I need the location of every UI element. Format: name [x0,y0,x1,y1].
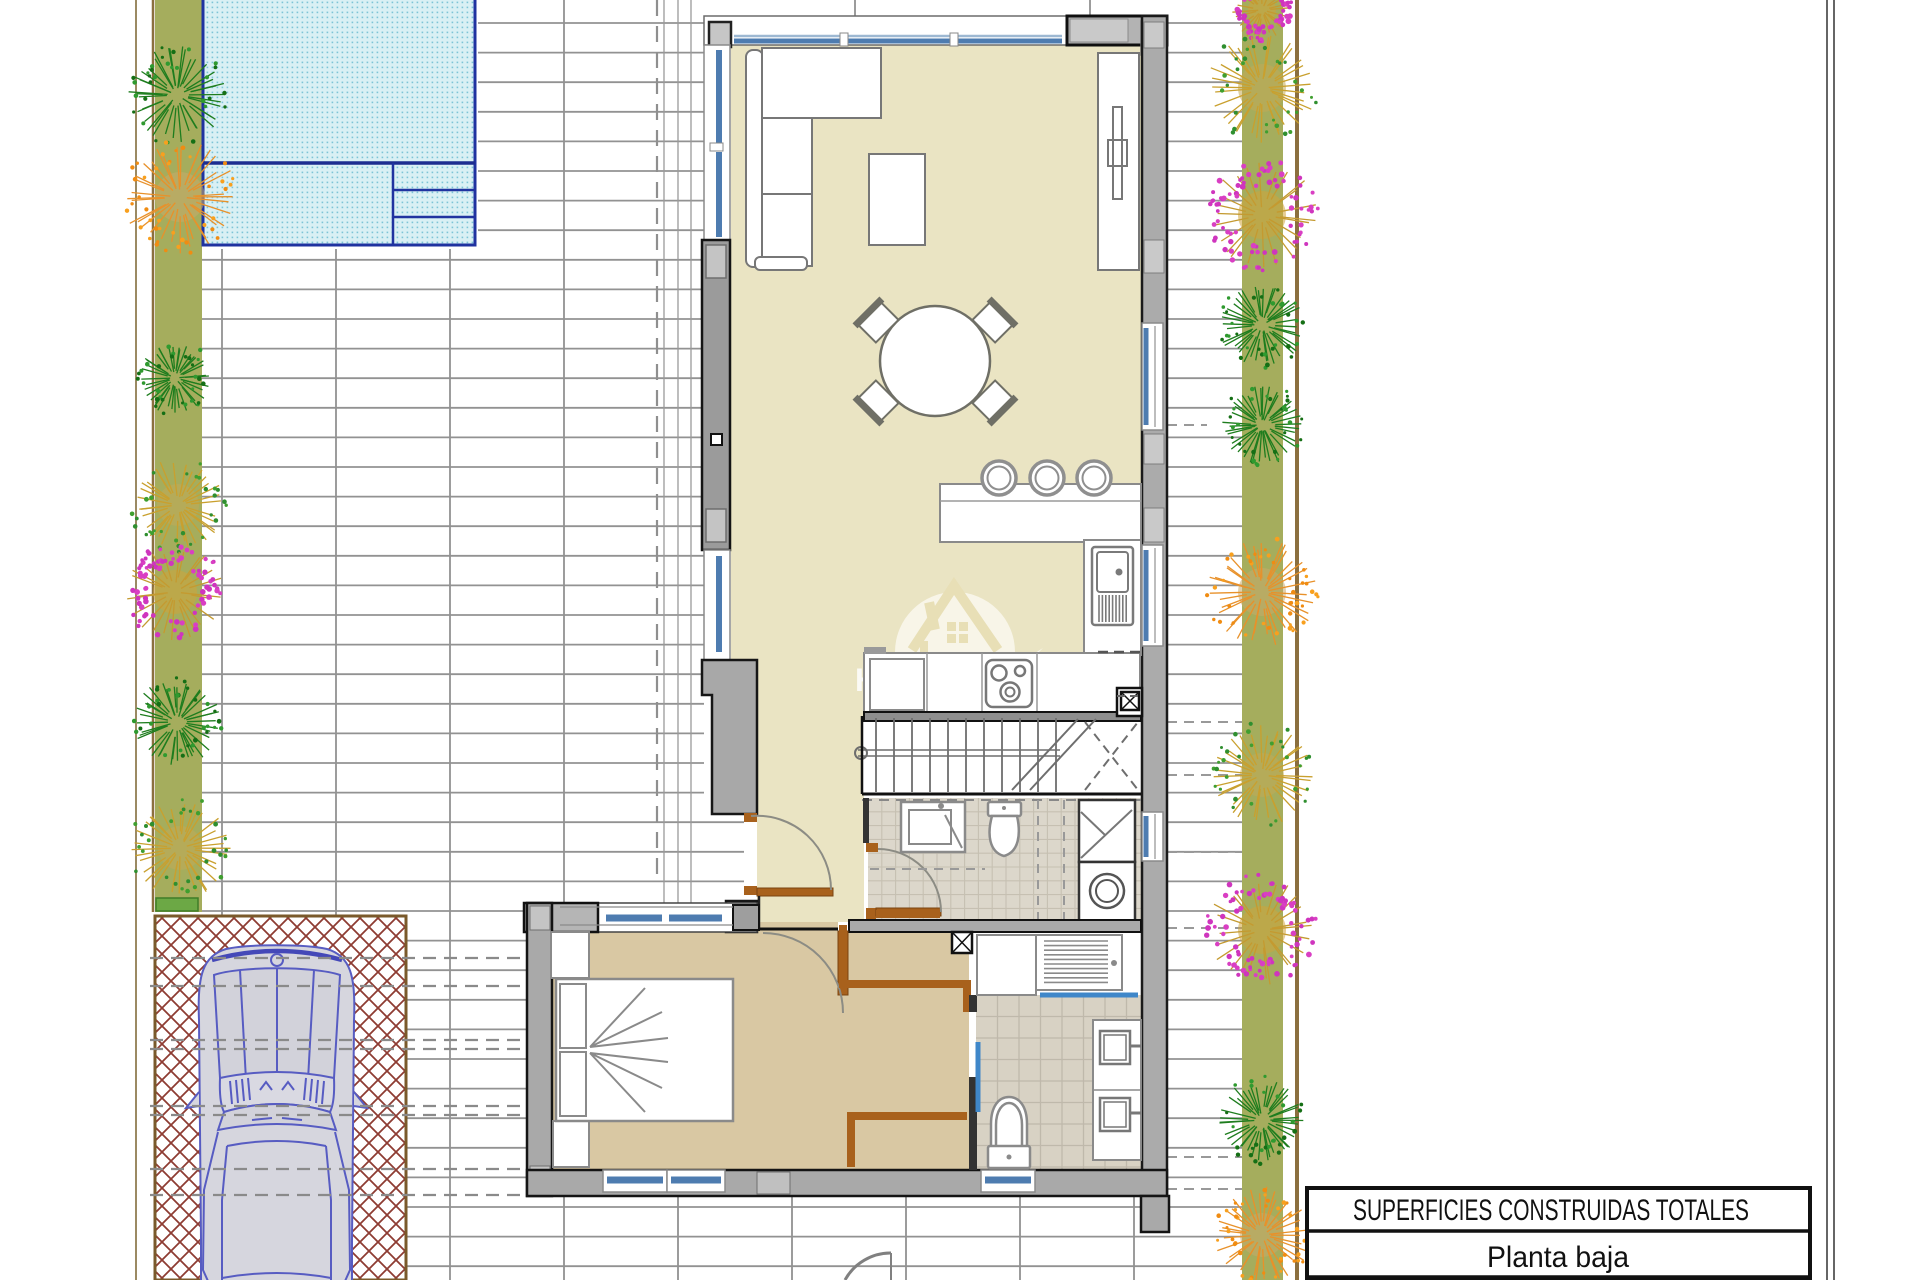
svg-text:Planta baja: Planta baja [1487,1241,1629,1274]
svg-text:SUPERFICIES CONSTRUIDAS TOTALE: SUPERFICIES CONSTRUIDAS TOTALES [1353,1194,1749,1227]
